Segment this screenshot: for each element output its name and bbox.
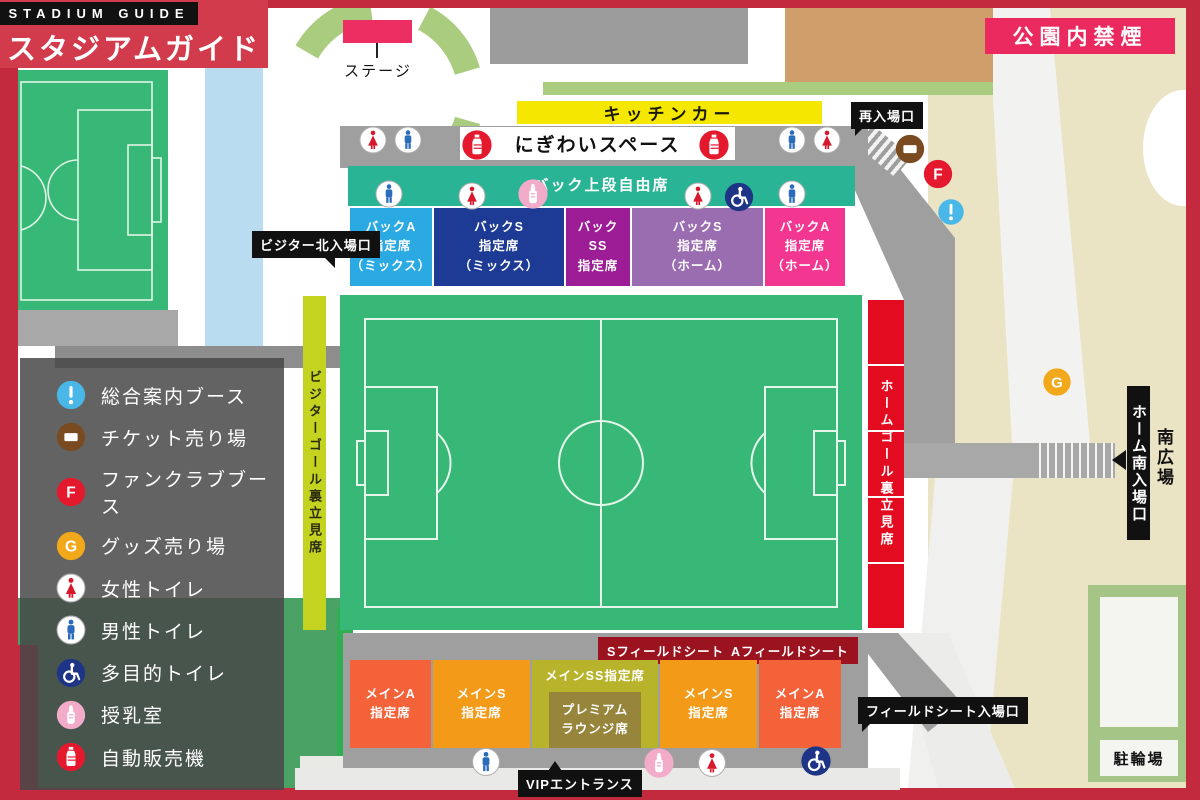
goods-icon: G	[1043, 368, 1072, 397]
female-toilet-icon	[698, 749, 727, 778]
seat-block-label: 指定席	[370, 704, 411, 723]
vending-machine-icon	[462, 130, 493, 161]
legend-item-label: 総合案内ブース	[101, 382, 247, 409]
fanclub-icon: F	[923, 159, 953, 189]
svg-text:F: F	[933, 167, 942, 184]
male-toilet-icon	[778, 126, 806, 154]
fanclub-icon: F	[923, 159, 953, 189]
legend-item: 女性トイレ	[56, 573, 284, 603]
legend-item: 総合案内ブース	[56, 380, 284, 410]
nursing-room-icon	[518, 179, 549, 210]
seat-block-label: バックA	[780, 218, 831, 237]
svg-text:G: G	[65, 538, 77, 555]
male-toilet-icon	[394, 126, 422, 154]
seat-block-label: （ホーム）	[771, 257, 838, 276]
legend-item: 多目的トイレ	[56, 658, 284, 688]
nursing-room-icon	[518, 179, 549, 210]
legend-item-label: 男性トイレ	[101, 617, 206, 644]
soccer-pitch	[340, 295, 862, 630]
legend-panel: 総合案内ブースチケット売り場FファンクラブブースGグッズ売り場女性トイレ男性トイ…	[20, 358, 284, 790]
visitor-north-gate-label: ビジター北入場口	[252, 231, 380, 258]
field-seat-gate-label: フィールドシート入場口	[858, 697, 1028, 724]
no-smoking-banner: 公園内禁煙	[985, 18, 1175, 54]
seat-block-back-s-mix: バックS指定席（ミックス）	[434, 208, 564, 286]
seat-block-label: バック	[578, 218, 619, 237]
seat-block-label: バックS	[474, 218, 524, 237]
legend-item: 授乳室	[56, 700, 284, 730]
male-toilet-icon	[375, 180, 403, 208]
stage-area	[343, 20, 412, 43]
stage-pointer-line	[376, 43, 378, 58]
female-toilet-icon	[458, 182, 486, 210]
seat-block-premium-lounge: プレミアムラウンジ席	[549, 692, 641, 748]
legend-item: 自動販売機	[56, 742, 284, 772]
accessible-toilet-icon	[801, 746, 832, 777]
seat-block-label: （ミックス）	[459, 257, 540, 276]
seat-block-label: メインSS指定席	[545, 667, 645, 686]
legend-item-label: ファンクラブブース	[101, 465, 284, 519]
female-toilet-icon	[698, 749, 727, 778]
female-toilet-icon	[684, 182, 712, 210]
seat-block-label: 指定席	[578, 257, 619, 276]
female-toilet-icon	[56, 573, 86, 603]
seat-block-label: メインS	[684, 685, 734, 704]
seat-block-label: 指定席	[780, 704, 821, 723]
legend-item-label: グッズ売り場	[101, 532, 227, 559]
seat-block-back-ss: バックSS指定席	[566, 208, 630, 286]
seat-block-back-a-home: バックA指定席（ホーム）	[765, 208, 845, 286]
seat-block-label: 指定席	[461, 704, 502, 723]
male-toilet-icon	[472, 748, 501, 777]
accessible-toilet-icon	[724, 182, 754, 212]
nigiwai-space: にぎわいスペース	[460, 127, 735, 160]
seat-block-label: メインA	[775, 685, 826, 704]
ticket-icon	[895, 134, 925, 164]
page-title: スタジアムガイド	[0, 26, 268, 68]
female-toilet-icon	[458, 182, 486, 210]
male-toilet-icon	[778, 126, 806, 154]
seat-block-label: プレミアム	[562, 701, 629, 720]
visitor-goal-stand: ビジターゴール裏立見席	[303, 296, 326, 630]
male-toilet-icon	[472, 748, 501, 777]
brand-en-banner: STADIUM GUIDE	[0, 2, 198, 25]
accessible-toilet-icon	[56, 658, 86, 688]
female-toilet-icon	[359, 126, 387, 154]
goods-icon: G	[56, 531, 86, 561]
ticket-icon	[56, 422, 86, 452]
seat-block-label: メインS	[457, 685, 507, 704]
info-icon	[938, 199, 965, 226]
legend-item-label: 多目的トイレ	[101, 659, 227, 686]
nursing-room-icon	[56, 700, 86, 730]
south-plaza-label: 南広場	[1152, 428, 1176, 508]
nursing-room-icon	[644, 748, 675, 779]
seat-block-main-a-left: メインA指定席	[350, 660, 431, 748]
legend-item-label: 授乳室	[101, 701, 164, 728]
fanclub-icon: F	[56, 477, 86, 507]
seat-block-label: バックS	[673, 218, 723, 237]
legend-item: Fファンクラブブース	[56, 465, 284, 519]
seat-block-label: 指定席	[688, 704, 729, 723]
svg-text:F: F	[66, 484, 75, 501]
male-toilet-icon	[375, 180, 403, 208]
legend-item: 男性トイレ	[56, 615, 284, 645]
seat-block-main-a-right: メインA指定席	[759, 660, 841, 748]
male-toilet-icon	[394, 126, 422, 154]
home-goal-stand: ホームゴール裏立見席	[868, 300, 904, 628]
home-south-gate-label: ホーム南入場口	[1127, 386, 1150, 540]
info-icon	[938, 199, 965, 226]
seat-block-label: 指定席	[677, 237, 718, 256]
stage-label: ステージ	[338, 60, 418, 81]
seat-block-label: （ミックス）	[351, 257, 432, 276]
legend-item-label: チケット売り場	[101, 424, 248, 451]
bicycle-parking-label: 駐輪場	[1100, 740, 1178, 776]
female-toilet-icon	[813, 126, 841, 154]
seat-block-label: SS	[589, 237, 608, 256]
vip-entrance-label: VIPエントランス	[518, 770, 642, 797]
nursing-room-icon	[644, 748, 675, 779]
vending-machine-icon	[56, 742, 86, 772]
legend-item-label: 女性トイレ	[101, 575, 206, 602]
legend-item-label: 自動販売機	[101, 744, 206, 771]
svg-text:G: G	[1051, 374, 1063, 391]
seat-block-label: 指定席	[785, 237, 826, 256]
vending-machine-icon	[699, 130, 730, 161]
female-toilet-icon	[813, 126, 841, 154]
kitchen-car-area: キッチンカー	[517, 101, 822, 124]
accessible-toilet-icon	[801, 746, 832, 777]
info-icon	[56, 380, 86, 410]
pitch-markings	[340, 295, 862, 630]
seat-block-label: メインA	[365, 685, 416, 704]
seat-block-label: （ホーム）	[664, 257, 731, 276]
legend-item: チケット売り場	[56, 422, 284, 452]
seat-block-label: 指定席	[479, 237, 520, 256]
stadium-guide-map: { "title_banner": {"brand_en": "STADIUM …	[0, 0, 1200, 800]
vending-machine-icon	[462, 130, 493, 161]
male-toilet-icon	[778, 180, 806, 208]
female-toilet-icon	[359, 126, 387, 154]
female-toilet-icon	[684, 182, 712, 210]
ticket-icon	[895, 134, 925, 164]
accessible-toilet-icon	[724, 182, 754, 212]
seat-block-label: ラウンジ席	[561, 720, 629, 739]
seat-block-main-s-right: メインS指定席	[660, 660, 757, 748]
male-toilet-icon	[778, 180, 806, 208]
seat-block-main-s-left: メインS指定席	[433, 660, 530, 748]
vending-machine-icon	[699, 130, 730, 161]
male-toilet-icon	[56, 615, 86, 645]
goods-icon: G	[1043, 368, 1072, 397]
legend-item: Gグッズ売り場	[56, 531, 284, 561]
seat-block-back-s-home: バックS指定席（ホーム）	[632, 208, 763, 286]
